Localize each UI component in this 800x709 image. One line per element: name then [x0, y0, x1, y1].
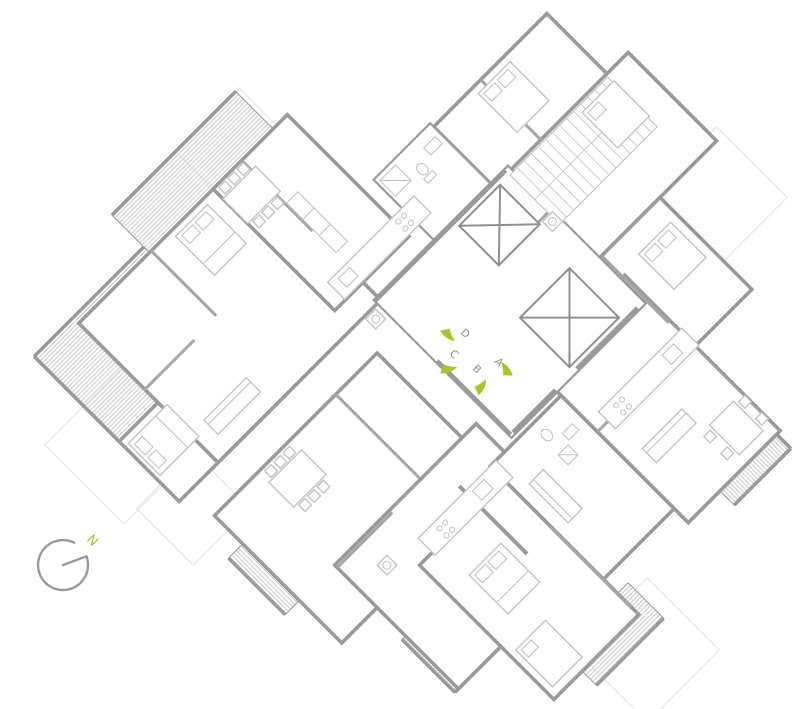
north-compass: N: [38, 532, 101, 590]
compass-north-label: N: [83, 532, 100, 549]
floor-plan-page: D C B A N: [0, 0, 800, 709]
building-rotated-group: [0, 0, 800, 709]
compass-needle-icon: [63, 556, 87, 565]
floor-plan-drawing: D C B A N: [0, 0, 800, 709]
